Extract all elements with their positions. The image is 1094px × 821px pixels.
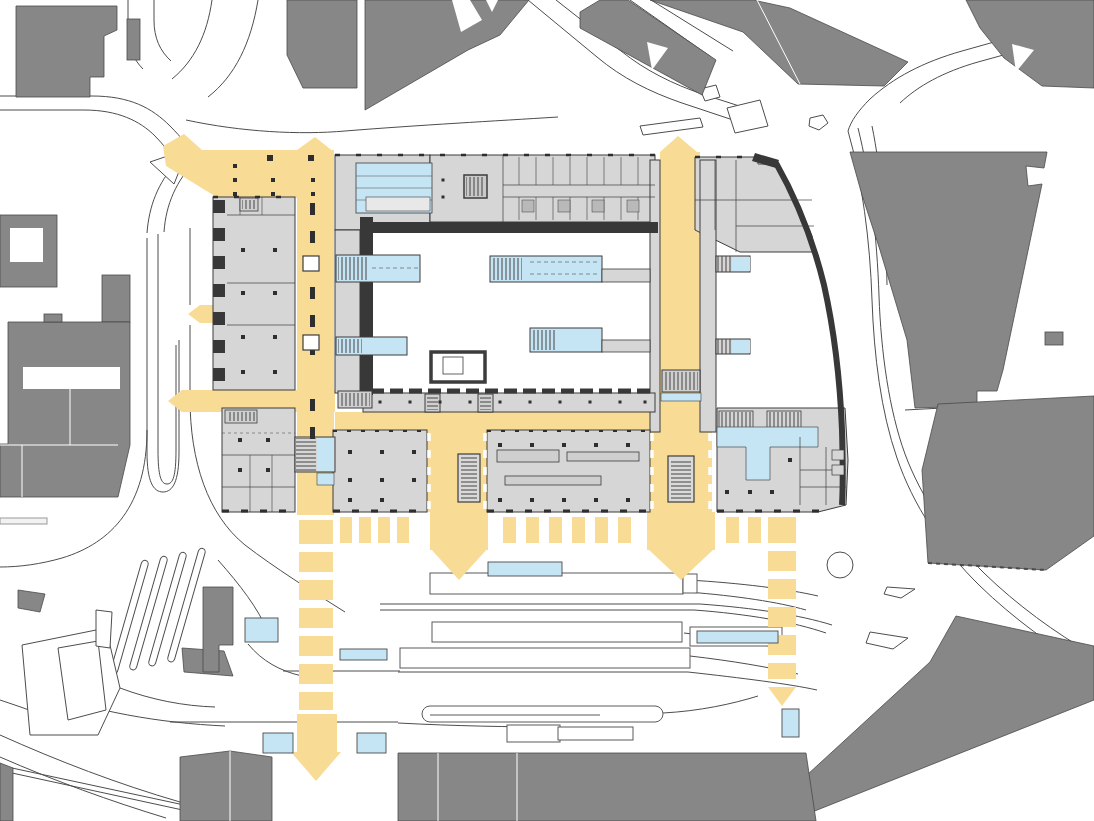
shelter-canopy bbox=[340, 649, 387, 660]
column-dot bbox=[412, 450, 416, 454]
path-dash bbox=[299, 692, 333, 710]
site-plan-canvas bbox=[0, 0, 1094, 821]
path-dash bbox=[768, 579, 796, 599]
spine-tick bbox=[310, 315, 315, 327]
room-box bbox=[832, 465, 844, 475]
column-dot bbox=[348, 478, 352, 482]
stairwell-notch bbox=[213, 368, 225, 381]
escalator-hatch bbox=[492, 258, 522, 280]
counter bbox=[497, 450, 559, 462]
road-line bbox=[0, 757, 166, 818]
stairwell-notch bbox=[213, 284, 225, 297]
column-dot bbox=[273, 335, 277, 339]
column-dot bbox=[241, 291, 245, 295]
column-dot bbox=[594, 443, 598, 447]
column-dot bbox=[530, 443, 534, 447]
shelter-canopy bbox=[245, 618, 278, 642]
traffic-island bbox=[866, 632, 908, 649]
escalator-hatch bbox=[338, 257, 368, 280]
flow-stub-arrow bbox=[188, 305, 216, 323]
elevator bbox=[303, 256, 319, 271]
spine-tick bbox=[310, 427, 315, 439]
path-arrow-tip bbox=[768, 687, 796, 706]
stair-hatch bbox=[227, 412, 255, 421]
shelter-canopy bbox=[357, 733, 386, 753]
counter bbox=[567, 452, 639, 461]
column-dot bbox=[238, 438, 242, 442]
path-dash bbox=[768, 551, 796, 571]
escalator-glass bbox=[317, 438, 334, 471]
traffic-island bbox=[884, 587, 915, 598]
transit-platforms bbox=[400, 573, 782, 742]
crosswalk-dash bbox=[748, 517, 761, 543]
room-strip bbox=[366, 197, 430, 211]
column-dot bbox=[725, 490, 729, 494]
column-dot bbox=[267, 155, 273, 161]
block-west bbox=[213, 197, 295, 390]
column-dot bbox=[238, 468, 242, 472]
stair-hatch bbox=[242, 200, 256, 209]
column-dot bbox=[559, 401, 562, 404]
spine-tick bbox=[310, 399, 315, 411]
context-building bbox=[398, 753, 816, 821]
stair-hatch bbox=[664, 372, 698, 390]
column-dot bbox=[241, 335, 245, 339]
column-dot bbox=[233, 192, 237, 196]
heavy-wall bbox=[367, 222, 658, 233]
bus-platform bbox=[400, 648, 690, 668]
crosswalk-dash bbox=[595, 517, 608, 543]
column-dot bbox=[380, 450, 384, 454]
crosswalk-dash bbox=[378, 517, 390, 543]
elevator bbox=[303, 335, 319, 350]
column-dot bbox=[273, 370, 277, 374]
column-dot bbox=[619, 401, 622, 404]
context-building bbox=[287, 0, 357, 88]
crosswalk-dash bbox=[397, 517, 409, 543]
shelter-canopy bbox=[263, 733, 293, 753]
room-box bbox=[522, 200, 534, 212]
column-dot bbox=[529, 401, 532, 404]
road-line bbox=[172, 0, 212, 79]
column-dot bbox=[233, 178, 237, 182]
stair-hatch bbox=[466, 177, 485, 196]
bus-platform bbox=[683, 574, 697, 593]
crosswalk-dash bbox=[340, 517, 352, 543]
path-dash bbox=[299, 636, 333, 656]
column-dot bbox=[348, 498, 352, 502]
column-dot bbox=[562, 443, 566, 447]
counter bbox=[505, 476, 601, 485]
stair-hatch bbox=[427, 396, 438, 410]
crosswalk-dash bbox=[549, 517, 562, 543]
corridor-west bbox=[335, 230, 360, 393]
escalator-hatch bbox=[716, 256, 732, 272]
bus-platform bbox=[507, 725, 560, 742]
column-dot bbox=[266, 468, 270, 472]
context-building bbox=[203, 587, 233, 672]
canopy-outline bbox=[727, 100, 768, 133]
heavy-wall bbox=[360, 217, 373, 395]
crosswalk-dash bbox=[572, 517, 585, 543]
column-dot bbox=[589, 401, 592, 404]
road-line bbox=[663, 696, 758, 713]
spine-east-edge bbox=[700, 160, 716, 432]
context-building bbox=[365, 0, 529, 110]
column-dot bbox=[594, 498, 598, 502]
shelter-canopy bbox=[782, 709, 799, 737]
context-building bbox=[102, 275, 130, 322]
road-line bbox=[154, 0, 171, 61]
outlined-building bbox=[96, 610, 112, 648]
column-dot bbox=[626, 443, 630, 447]
road-line bbox=[186, 120, 345, 133]
large-block-southeast bbox=[922, 396, 1094, 570]
column-dot bbox=[311, 192, 315, 196]
large-block-east bbox=[850, 152, 1047, 408]
block-west-lower bbox=[222, 408, 295, 512]
path-dash bbox=[299, 580, 333, 600]
stairwell-notch bbox=[213, 312, 225, 325]
column-dot bbox=[469, 401, 472, 404]
stair-hatch bbox=[461, 457, 477, 499]
column-dot bbox=[788, 458, 792, 462]
crosswalk-dash bbox=[726, 517, 739, 543]
column-dot bbox=[308, 155, 314, 161]
path-arrow-tip bbox=[291, 752, 341, 781]
courtyard bbox=[10, 228, 43, 262]
shelter-canopy bbox=[697, 631, 778, 643]
stairwell-notch bbox=[213, 340, 225, 353]
column-dot bbox=[266, 438, 270, 442]
column-dot bbox=[379, 401, 382, 404]
road-line bbox=[0, 110, 176, 163]
spine-tick bbox=[310, 287, 315, 299]
escalator-hatch bbox=[716, 339, 732, 354]
flow-arrow-mid bbox=[430, 512, 488, 550]
path-dash bbox=[768, 663, 796, 679]
column-dot bbox=[380, 478, 384, 482]
shelter-canopy bbox=[488, 562, 562, 576]
column-dot bbox=[271, 192, 275, 196]
path-dash bbox=[768, 607, 796, 627]
curb-strip bbox=[0, 518, 47, 524]
column-dot bbox=[380, 498, 384, 502]
room-box bbox=[558, 200, 570, 212]
path-dash bbox=[299, 552, 333, 572]
flow-spine-east-tip bbox=[660, 136, 697, 152]
column-dot bbox=[770, 490, 774, 494]
bridge-glass bbox=[732, 257, 750, 271]
traffic-island bbox=[809, 115, 828, 130]
path-dash bbox=[299, 520, 333, 544]
column-dot bbox=[241, 370, 245, 374]
context-building bbox=[127, 19, 140, 60]
road-line bbox=[398, 672, 817, 690]
column-dot bbox=[409, 401, 412, 404]
room-box bbox=[627, 200, 639, 212]
column-dot bbox=[439, 401, 442, 404]
escalator-hatch bbox=[532, 330, 556, 350]
crosswalk-dash bbox=[618, 517, 631, 543]
glass-landing bbox=[661, 393, 701, 401]
tram-island bbox=[422, 706, 663, 722]
column-dot bbox=[241, 248, 245, 252]
road-line bbox=[345, 117, 558, 131]
spine-tick bbox=[310, 231, 315, 243]
bus-platform bbox=[432, 622, 682, 642]
column-dot bbox=[498, 498, 502, 502]
context-building bbox=[18, 590, 45, 612]
context-building bbox=[16, 6, 117, 97]
column-dot bbox=[530, 498, 534, 502]
context-building bbox=[0, 322, 130, 497]
crosswalk-dash bbox=[503, 517, 516, 543]
column-dot bbox=[311, 178, 315, 182]
road-line bbox=[147, 238, 179, 492]
path-dash bbox=[299, 608, 333, 628]
context-building bbox=[0, 763, 13, 821]
escalator-hatch bbox=[338, 339, 362, 353]
column-dot bbox=[442, 179, 445, 182]
column-dot bbox=[748, 490, 752, 494]
column-dot bbox=[233, 164, 237, 168]
road-line bbox=[120, 688, 215, 707]
path-dash bbox=[768, 517, 796, 543]
stair-hatch bbox=[340, 393, 370, 406]
column-dot bbox=[271, 178, 275, 182]
column-dot bbox=[562, 498, 566, 502]
spine-tick bbox=[310, 203, 315, 215]
context-building bbox=[1045, 332, 1063, 345]
bus-platform bbox=[558, 727, 633, 740]
column-dot bbox=[273, 248, 277, 252]
flow-arrow-east bbox=[647, 512, 715, 550]
stairwell-notch bbox=[213, 256, 225, 269]
glass-box bbox=[317, 473, 334, 485]
bridge-link bbox=[602, 269, 650, 282]
bridge-link bbox=[602, 340, 650, 352]
stairwell-notch bbox=[213, 200, 225, 213]
room-box bbox=[832, 450, 844, 460]
column-dot bbox=[273, 291, 277, 295]
stairwell-notch bbox=[213, 228, 225, 241]
spine-east-edge bbox=[650, 160, 660, 432]
column-dot bbox=[412, 478, 416, 482]
concourse-strip bbox=[363, 393, 655, 412]
stair-hatch bbox=[480, 396, 491, 410]
bridge-glass bbox=[732, 340, 750, 353]
path-dash bbox=[299, 664, 333, 684]
roundabout bbox=[827, 552, 853, 578]
context-building bbox=[44, 314, 62, 322]
column-dot bbox=[442, 196, 445, 199]
crosswalk-dash bbox=[359, 517, 371, 543]
context-building bbox=[180, 751, 272, 821]
path-arrow-shaft bbox=[297, 714, 337, 752]
escalator-hatch bbox=[296, 438, 316, 471]
atrium-room-core bbox=[443, 357, 463, 374]
room-box bbox=[592, 200, 604, 212]
column-dot bbox=[499, 401, 502, 404]
column-dot bbox=[626, 498, 630, 502]
courtyard bbox=[23, 367, 120, 389]
road-line bbox=[208, 0, 258, 97]
canopy-outline bbox=[640, 118, 703, 135]
block-south bbox=[487, 430, 650, 512]
site-plan bbox=[0, 0, 1094, 821]
road-line bbox=[158, 234, 176, 484]
column-dot bbox=[644, 401, 647, 404]
column-dot bbox=[348, 450, 352, 454]
crosswalk-dash bbox=[526, 517, 539, 543]
column-dot bbox=[498, 443, 502, 447]
stair-hatch bbox=[671, 459, 691, 499]
